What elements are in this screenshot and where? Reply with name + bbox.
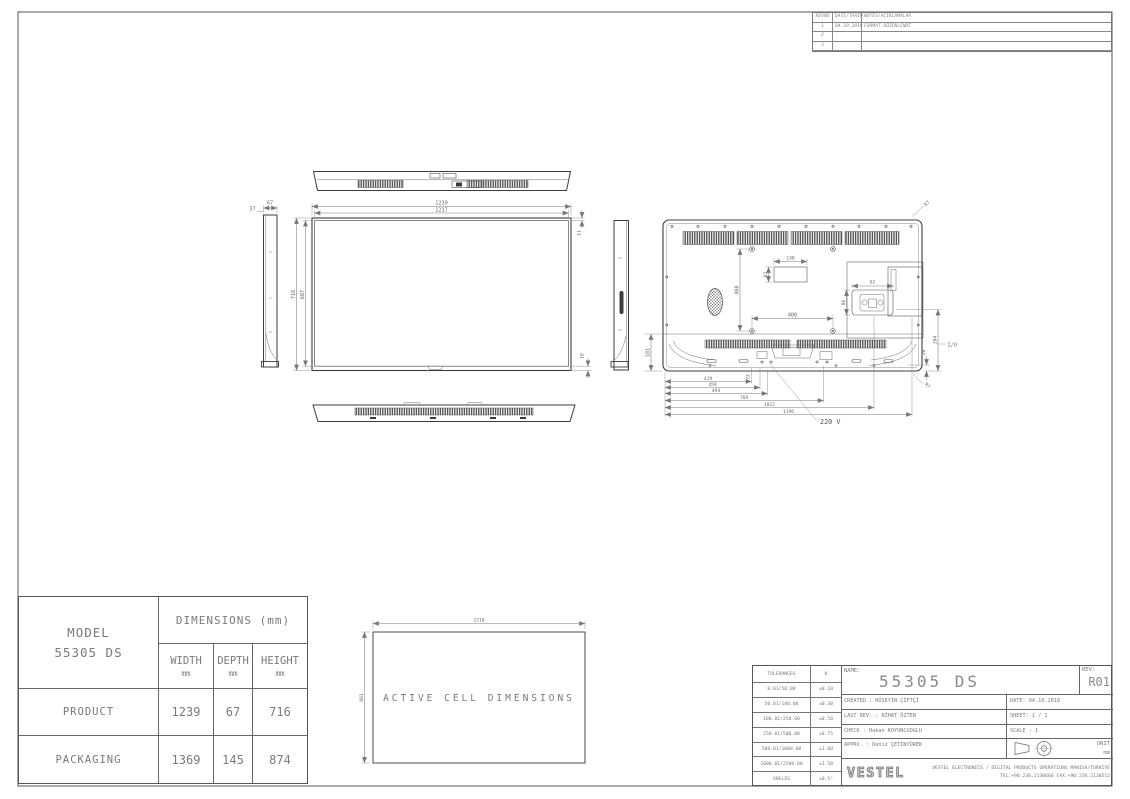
dim-back-vesa-horizontal: 400 — [788, 313, 797, 319]
title-block: TOLERANCES K 0.01/50.00 ±0.10 50.01/100.… — [752, 665, 1112, 786]
tol-value: ±0.10 — [810, 683, 841, 698]
dim-back-recess-height: 62 — [763, 272, 769, 278]
drawing-sheet: 67 37 1239 1217 716 687 11 — [0, 0, 1130, 799]
model-cell: MODEL 55305 DS — [19, 597, 158, 688]
footer-line1: VESTEL ELECTRONICS / DIGITAL PRODUCTS OP… — [905, 765, 1110, 773]
dim-back-inlet-width: 62 — [870, 280, 876, 286]
footer-text: VESTEL ELECTRONICS / DIGITAL PRODUCTS OP… — [905, 765, 1110, 781]
packaging-width: 1369 — [158, 735, 213, 783]
sheet-cell: SHEET: 1 / 1 — [1006, 710, 1113, 725]
io-label: I/O — [948, 343, 957, 349]
top-view — [314, 172, 571, 191]
tol-range: ANGLES — [753, 772, 810, 786]
front-view: 1239 1217 716 687 11 18 — [291, 201, 591, 379]
dim-chain-494: 494 — [712, 388, 721, 394]
rev-value: R01 — [1088, 675, 1110, 689]
tol-value: ±0.50 — [810, 713, 841, 728]
unit-value: mm — [1097, 749, 1110, 757]
scale-cell: SCALE : 1 — [1006, 725, 1113, 739]
active-cell-drawing: 1210 681 ACTIVE CELL DIMENSIONS — [359, 618, 585, 764]
rev-row-no: 1 — [813, 23, 833, 33]
rev-row-date: 04.10.2018 — [833, 23, 862, 33]
product-height: 716 — [252, 688, 307, 735]
dim-front-width-outer: 1239 — [435, 201, 448, 207]
dim-chain-459: 459 — [708, 382, 717, 388]
footer-band: VESTEL VESTEL ELECTRONICS / DIGITAL PROD… — [841, 759, 1113, 787]
dim-chain-769: 769 — [740, 395, 749, 401]
tolerances-table: TOLERANCES K 0.01/50.00 ±0.10 50.01/100.… — [753, 666, 842, 785]
dim-back-io-vertical: 294 — [933, 336, 939, 345]
vestel-logo: VESTEL — [847, 765, 905, 781]
rev-row-date — [833, 32, 862, 42]
name-value: 55305 DS — [879, 672, 980, 691]
packaging-height: 874 — [252, 735, 307, 783]
tol-range: 250.01/500.00 — [753, 728, 810, 743]
dim-active-cell-height: 681 — [359, 693, 365, 702]
approved-cell: APPRV. : Deniz ÇETİNYÜREK — [841, 739, 1006, 759]
dimensions-header: DIMENSIONS (mm) — [158, 597, 307, 643]
check-cell: CHECK : Hakan KOYUNCUOGLU — [841, 725, 1006, 739]
footer-line2: TEL:+90.236.2130660 FAX:+90.236.2130512 — [905, 773, 1110, 781]
packaging-depth: 145 — [213, 735, 252, 783]
projection-unit-cell: UNIT mm — [1006, 739, 1113, 759]
dim-chain-1196: 1196 — [783, 409, 794, 415]
col-depth-label: DEPTH — [217, 655, 249, 667]
dim-back-stand-offset: 33 — [746, 374, 752, 380]
rev-row-no: 2 — [813, 32, 833, 42]
dim-chain-419: 419 — [704, 376, 713, 382]
col-depth: DEPTH mm — [213, 643, 252, 688]
unit-box: UNIT mm — [1097, 740, 1110, 757]
rev-row-note: FORMAT DÜZENLENDİ — [862, 23, 1111, 33]
dimensions-table: MODEL 55305 DS DIMENSIONS (mm) WIDTH mm … — [18, 596, 308, 784]
tol-range: 100.01/250.00 — [753, 713, 810, 728]
dim-front-height-outer: 716 — [291, 290, 297, 299]
rev-col-header-date: DATE/TARİH — [833, 13, 862, 23]
tol-range: 500.01/1000.00 — [753, 743, 810, 758]
model-value: 55305 DS — [54, 643, 122, 663]
dim-back-bottom-section: 181 — [646, 348, 652, 357]
dim-back-corner-radius-top: R7 — [923, 200, 931, 208]
revision-table: REVNO DATE/TARİH NOTES/AÇIKLAMALAR 1 04.… — [812, 12, 1112, 52]
model-label: MODEL — [67, 623, 110, 643]
rev-col-header-no: REVNO — [813, 13, 833, 23]
tol-range: 50.01/100.00 — [753, 698, 810, 713]
power-voltage-label: 220 V — [820, 418, 840, 426]
tol-range: 0.01/50.00 — [753, 683, 810, 698]
active-cell-label: ACTIVE CELL DIMENSIONS — [383, 693, 575, 704]
dim-back-io-edge: 29 — [921, 350, 927, 356]
dim-active-cell-width: 1210 — [473, 618, 484, 624]
packaging-row-label: PACKAGING — [19, 735, 158, 783]
col-width-label: WIDTH — [170, 655, 202, 667]
tol-value: ±1.00 — [810, 743, 841, 758]
bottom-view — [313, 403, 575, 422]
tol-range: 1000.01/2500.00 — [753, 757, 810, 772]
dim-back-vesa-vertical: 400 — [735, 285, 741, 294]
created-cell: CREATED : HÜSEYİN ÇİFTÇİ — [841, 695, 1006, 710]
projection-symbol-icon — [1013, 739, 1059, 758]
rev-block: REV: R01 — [1079, 666, 1113, 695]
dim-side-depth-front: 37 — [249, 207, 255, 213]
dim-back-inlet-height: 80 — [841, 300, 847, 306]
name-label: NAME: — [844, 668, 861, 674]
product-width: 1239 — [158, 688, 213, 735]
dim-back-recess-width: 130 — [786, 256, 795, 262]
dim-chain-1012: 1012 — [764, 402, 775, 408]
dim-front-width-inner: 1217 — [435, 207, 448, 213]
rev-row-note — [862, 32, 1111, 42]
dim-front-bezel-bottom: 18 — [580, 353, 586, 359]
tol-value: ±0.75 — [810, 728, 841, 743]
back-view: R7 R7 400 400 130 62 62 80 181 — [645, 200, 957, 426]
tolerances-header: TOLERANCES — [753, 666, 810, 683]
dim-back-corner-radius-bottom: R7 — [923, 382, 931, 390]
tol-value: ±0.30 — [810, 698, 841, 713]
last-rev-cell: LAST REV. : NİHAT ÖZTEN — [841, 710, 1006, 725]
tolerances-k: K — [810, 666, 841, 683]
col-height: HEIGHT mm — [252, 643, 307, 688]
col-depth-unit: mm — [228, 669, 237, 678]
tol-value: ±1.50 — [810, 757, 841, 772]
rev-row-note — [862, 42, 1111, 52]
rev-row-date — [833, 42, 862, 52]
dim-side-depth-total: 67 — [267, 201, 273, 207]
unit-label: UNIT — [1097, 740, 1110, 748]
dim-front-height-inner: 687 — [300, 290, 306, 299]
product-row-label: PRODUCT — [19, 688, 158, 735]
rev-label: REV: — [1082, 667, 1095, 673]
tol-value: ±0,5° — [810, 772, 841, 786]
product-depth: 67 — [213, 688, 252, 735]
col-height-unit: mm — [275, 669, 284, 678]
dim-front-bezel-top: 11 — [577, 230, 583, 236]
left-side-view: 67 37 — [249, 201, 278, 368]
rev-col-header-notes: NOTES/AÇIKLAMALAR — [862, 13, 1111, 23]
col-height-label: HEIGHT — [261, 655, 299, 667]
col-width: WIDTH mm — [158, 643, 213, 688]
rev-row-no: 3 — [813, 42, 833, 52]
right-side-view — [611, 221, 629, 371]
col-width-unit: mm — [181, 669, 190, 678]
date-cell: DATE: 04.10.2018 — [1006, 695, 1113, 710]
name-block: NAME: 55305 DS — [841, 666, 1079, 695]
